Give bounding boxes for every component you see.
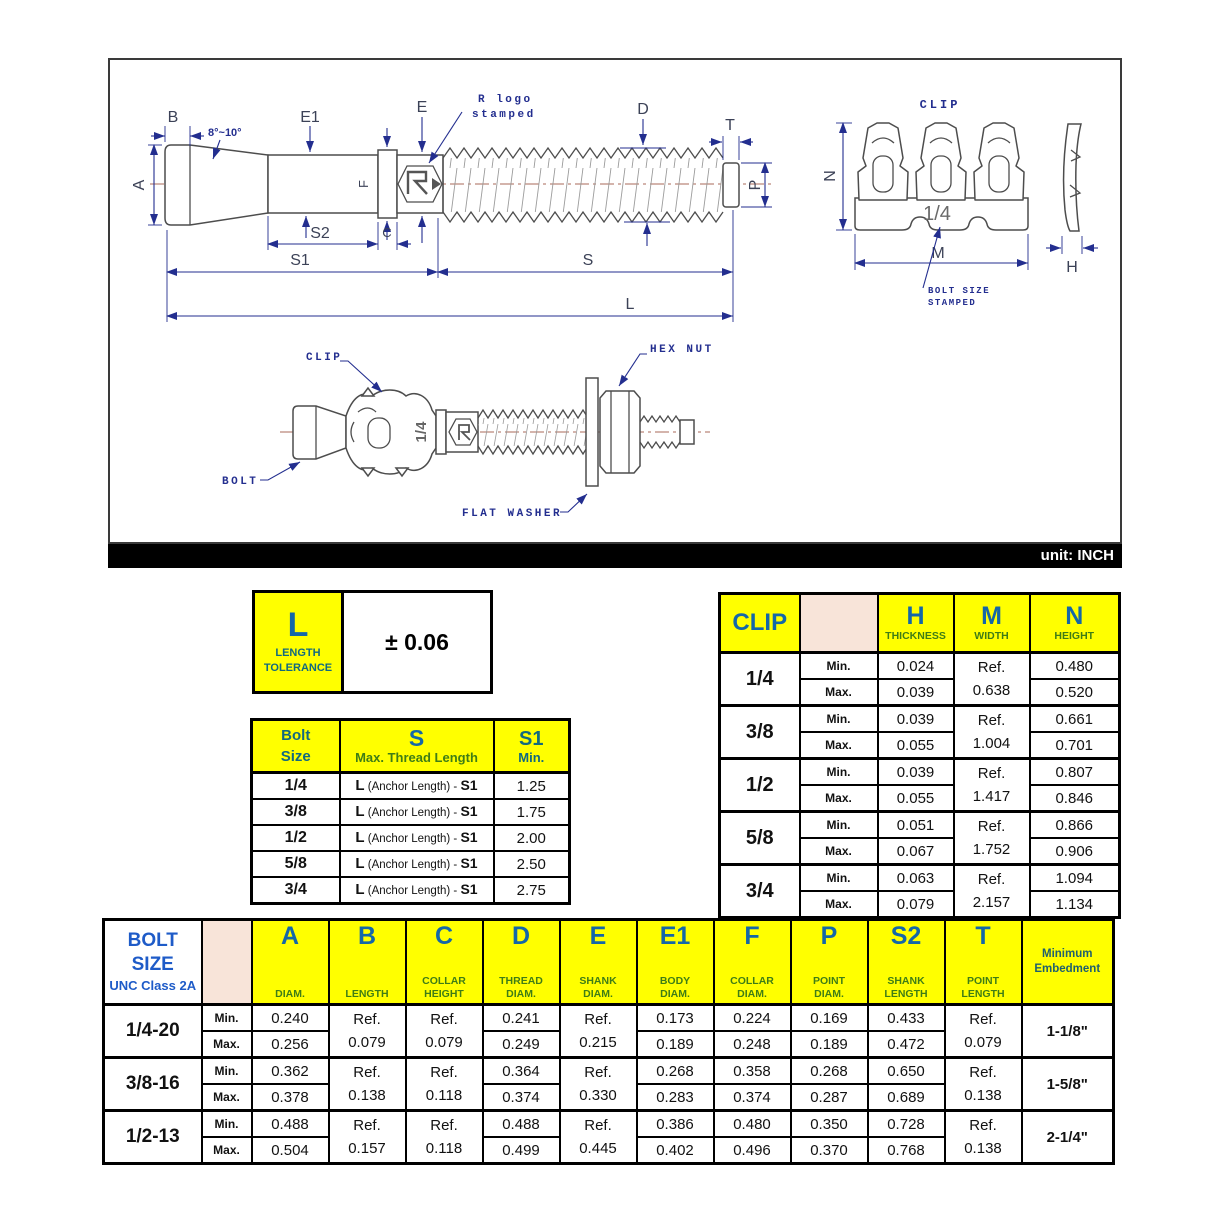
- tolerance-header-cell: L LENGTH TOLERANCE: [255, 593, 344, 691]
- cell-t-ref: Ref.0.138: [945, 1058, 1022, 1111]
- tolerance-label-1: LENGTH: [275, 646, 320, 661]
- bolt-dimension-table: BOLT SIZE UNC Class 2A ADIAM. BLENGTH CC…: [102, 918, 1115, 1165]
- table-row: 1/2-13 Min. 0.488 Ref.0.157 Ref.0.118 0.…: [104, 1111, 1114, 1138]
- cell-min-label: Min.: [800, 653, 878, 680]
- cell-e1-min: 0.386: [637, 1111, 714, 1138]
- cell-size: 1/4: [252, 773, 340, 800]
- clip-stamp-quarter: 1/4: [923, 203, 951, 225]
- cell-size: 1/2: [720, 759, 800, 812]
- clip-table-title: CLIP: [720, 594, 800, 653]
- header-t: TPOINTLENGTH: [945, 920, 1022, 1005]
- cell-size: 5/8: [720, 812, 800, 865]
- table-row: 3/8 L (Anchor Length) - S1 1.75: [252, 799, 570, 825]
- dim-label-d: D: [637, 101, 649, 118]
- table-row: 3/8 Min. 0.039 Ref.1.004 0.661: [720, 706, 1120, 733]
- cell-min-label: Min.: [800, 706, 878, 733]
- cell-n-max: 0.906: [1030, 838, 1120, 865]
- thread-length-table: Bolt Size S Max. Thread Length S1 Min. 1…: [250, 718, 571, 905]
- cell-m-ref: Ref.2.157: [954, 865, 1030, 918]
- header-spacer-cell: [800, 594, 878, 653]
- cell-s1-min: 2.75: [494, 877, 570, 904]
- cell-n-min: 0.807: [1030, 759, 1120, 786]
- cell-a-max: 0.504: [252, 1137, 329, 1164]
- cell-d-min: 0.364: [483, 1058, 560, 1085]
- header-p: PPOINTDIAM.: [791, 920, 868, 1005]
- cell-f-max: 0.496: [714, 1137, 791, 1164]
- cell-size: 1/2: [252, 825, 340, 851]
- unit-label: unit: INCH: [1041, 547, 1114, 564]
- cell-s2-min: 0.433: [868, 1005, 945, 1032]
- header-b: BLENGTH: [329, 920, 406, 1005]
- dim-label-b: B: [168, 109, 179, 126]
- cell-s1-min: 2.50: [494, 851, 570, 877]
- cell-a-max: 0.378: [252, 1084, 329, 1111]
- cell-h-max: 0.055: [878, 785, 954, 812]
- assembly-label-clip: CLIP: [306, 352, 342, 364]
- cell-h-max: 0.067: [878, 838, 954, 865]
- cell-t-ref: Ref.0.138: [945, 1111, 1022, 1164]
- cell-max-label: Max.: [800, 838, 878, 865]
- header-n: NHEIGHT: [1030, 594, 1120, 653]
- cell-c-ref: Ref.0.079: [406, 1005, 483, 1058]
- cell-n-min: 1.094: [1030, 865, 1120, 892]
- cell-a-min: 0.240: [252, 1005, 329, 1032]
- cell-size: 3/4: [720, 865, 800, 918]
- dim-label-e1: E1: [300, 109, 320, 126]
- table-row: 1/2 L (Anchor Length) - S1 2.00: [252, 825, 570, 851]
- cell-min-label: Min.: [800, 865, 878, 892]
- cell-n-max: 1.134: [1030, 891, 1120, 918]
- cell-s2-max: 0.689: [868, 1084, 945, 1111]
- table-row: 1/4 Min. 0.024 Ref.0.638 0.480: [720, 653, 1120, 680]
- cell-n-min: 0.480: [1030, 653, 1120, 680]
- cell-size: 1/4: [720, 653, 800, 706]
- assembly-label-hex-nut: HEX NUT: [650, 344, 714, 356]
- cell-size: 3/4: [252, 877, 340, 904]
- note-bolt-size-line2: STAMPED: [928, 298, 976, 308]
- cell-d-max: 0.249: [483, 1031, 560, 1058]
- cell-h-max: 0.039: [878, 679, 954, 706]
- header-m: MWIDTH: [954, 594, 1030, 653]
- cell-size: 3/8: [720, 706, 800, 759]
- header-f: FCOLLARDIAM.: [714, 920, 791, 1005]
- cell-p-max: 0.370: [791, 1137, 868, 1164]
- cell-e1-min: 0.268: [637, 1058, 714, 1085]
- dim-label-s1: S1: [290, 252, 310, 269]
- technical-drawing-panel: B 8°~10° A E1 E F: [108, 58, 1122, 544]
- cell-s1-min: 1.75: [494, 799, 570, 825]
- assembly-stamp-quarter: 1/4: [413, 421, 430, 443]
- cell-s2-max: 0.472: [868, 1031, 945, 1058]
- cell-b-ref: Ref.0.079: [329, 1005, 406, 1058]
- cell-f-max: 0.248: [714, 1031, 791, 1058]
- cell-a-min: 0.362: [252, 1058, 329, 1085]
- cell-s2-min: 0.650: [868, 1058, 945, 1085]
- tolerance-label-2: TOLERANCE: [264, 661, 332, 676]
- assembly-label-flat-washer: FLAT WASHER: [462, 508, 562, 520]
- cell-formula: L (Anchor Length) - S1: [340, 799, 494, 825]
- cell-n-max: 0.701: [1030, 732, 1120, 759]
- cell-e1-max: 0.189: [637, 1031, 714, 1058]
- cell-size: 1/4-20: [104, 1005, 202, 1058]
- table-row: 3/4 Min. 0.063 Ref.2.157 1.094: [720, 865, 1120, 892]
- note-r-logo-line1: R logo: [478, 94, 533, 106]
- dim-label-angle: 8°~10°: [208, 127, 242, 139]
- cell-e-ref: Ref.0.215: [560, 1005, 637, 1058]
- cell-d-min: 0.241: [483, 1005, 560, 1032]
- cell-formula: L (Anchor Length) - S1: [340, 851, 494, 877]
- cell-b-ref: Ref.0.138: [329, 1058, 406, 1111]
- cell-min-label: Min.: [202, 1111, 252, 1138]
- cell-embedment: 1-5/8": [1022, 1058, 1114, 1111]
- cell-a-max: 0.256: [252, 1031, 329, 1058]
- cell-s2-max: 0.768: [868, 1137, 945, 1164]
- cell-h-min: 0.039: [878, 759, 954, 786]
- header-s2: S2SHANKLENGTH: [868, 920, 945, 1005]
- clip-view-title: CLIP: [920, 98, 961, 112]
- clip-side-view: H: [1046, 124, 1098, 276]
- cell-n-max: 0.846: [1030, 785, 1120, 812]
- dim-label-f: F: [356, 180, 371, 188]
- header-d: DTHREADDIAM.: [483, 920, 560, 1005]
- dim-label-n: N: [822, 170, 839, 182]
- table-row: 1/4-20 Min. 0.240 Ref.0.079 Ref.0.079 0.…: [104, 1005, 1114, 1032]
- cell-h-min: 0.039: [878, 706, 954, 733]
- cell-min-label: Min.: [800, 759, 878, 786]
- cell-f-min: 0.224: [714, 1005, 791, 1032]
- table-row: 5/8 Min. 0.051 Ref.1.752 0.866: [720, 812, 1120, 839]
- cell-size: 3/8-16: [104, 1058, 202, 1111]
- clip-front-view: CLIP 1/4 N: [822, 98, 1028, 308]
- table-header-row: Bolt Size S Max. Thread Length S1 Min.: [252, 720, 570, 773]
- header-spacer-cell: [202, 920, 252, 1005]
- cell-min-label: Min.: [202, 1058, 252, 1085]
- dim-label-a: A: [131, 179, 148, 190]
- cell-t-ref: Ref.0.079: [945, 1005, 1022, 1058]
- cell-embedment: 1-1/8": [1022, 1005, 1114, 1058]
- dim-label-m: M: [931, 245, 944, 262]
- dim-label-s2: S2: [310, 225, 330, 242]
- dim-label-c: C: [382, 225, 391, 240]
- header-s1: S1 Min.: [494, 720, 570, 773]
- cell-b-ref: Ref.0.157: [329, 1111, 406, 1164]
- cell-e1-max: 0.402: [637, 1137, 714, 1164]
- table-header-row: CLIP HTHICKNESS MWIDTH NHEIGHT: [720, 594, 1120, 653]
- cell-m-ref: Ref.0.638: [954, 653, 1030, 706]
- cell-e1-max: 0.283: [637, 1084, 714, 1111]
- cell-p-max: 0.287: [791, 1084, 868, 1111]
- cell-min-label: Min.: [800, 812, 878, 839]
- cell-e-ref: Ref.0.445: [560, 1111, 637, 1164]
- cell-d-max: 0.374: [483, 1084, 560, 1111]
- header-a: ADIAM.: [252, 920, 329, 1005]
- cell-h-max: 0.055: [878, 732, 954, 759]
- table-row: 5/8 L (Anchor Length) - S1 2.50: [252, 851, 570, 877]
- cell-m-ref: Ref.1.417: [954, 759, 1030, 812]
- note-bolt-size-line1: BOLT SIZE: [928, 286, 990, 296]
- header-s: S Max. Thread Length: [340, 720, 494, 773]
- dim-label-s: S: [583, 252, 594, 269]
- table-row: 3/4 L (Anchor Length) - S1 2.75: [252, 877, 570, 904]
- tolerance-value: ± 0.06: [344, 593, 490, 691]
- assembly-view: 1/4 CLIP BOLT HEX NUT: [222, 344, 714, 520]
- cell-h-min: 0.024: [878, 653, 954, 680]
- cell-m-ref: Ref.1.004: [954, 706, 1030, 759]
- cell-n-min: 0.866: [1030, 812, 1120, 839]
- table-row: 1/2 Min. 0.039 Ref.1.417 0.807: [720, 759, 1120, 786]
- cell-d-min: 0.488: [483, 1111, 560, 1138]
- cell-s1-min: 2.00: [494, 825, 570, 851]
- cell-min-label: Min.: [202, 1005, 252, 1032]
- cell-h-min: 0.063: [878, 865, 954, 892]
- bolt-table-title: BOLT SIZE UNC Class 2A: [104, 920, 202, 1005]
- header-bolt-size: Bolt Size: [252, 720, 340, 773]
- cell-size: 5/8: [252, 851, 340, 877]
- cell-p-min: 0.350: [791, 1111, 868, 1138]
- cell-max-label: Max.: [800, 785, 878, 812]
- table-row: 3/8-16 Min. 0.362 Ref.0.138 Ref.0.118 0.…: [104, 1058, 1114, 1085]
- table-row: 1/4 L (Anchor Length) - S1 1.25: [252, 773, 570, 800]
- anchor-side-view: [150, 145, 775, 225]
- header-c: CCOLLARHEIGHT: [406, 920, 483, 1005]
- cell-h-max: 0.079: [878, 891, 954, 918]
- cell-max-label: Max.: [800, 891, 878, 918]
- header-embedment: MinimumEmbedment: [1022, 920, 1114, 1005]
- cell-d-max: 0.499: [483, 1137, 560, 1164]
- cell-max-label: Max.: [202, 1137, 252, 1164]
- cell-c-ref: Ref.0.118: [406, 1111, 483, 1164]
- table-header-row: BOLT SIZE UNC Class 2A ADIAM. BLENGTH CC…: [104, 920, 1114, 1005]
- dim-label-p: P: [747, 180, 764, 191]
- cell-size: 1/2-13: [104, 1111, 202, 1164]
- assembly-label-bolt: BOLT: [222, 476, 258, 488]
- unit-bar: unit: INCH: [108, 544, 1122, 568]
- cell-size: 3/8: [252, 799, 340, 825]
- cell-n-min: 0.661: [1030, 706, 1120, 733]
- cell-f-min: 0.480: [714, 1111, 791, 1138]
- cell-formula: L (Anchor Length) - S1: [340, 825, 494, 851]
- tolerance-symbol: L: [288, 608, 309, 642]
- header-h: HTHICKNESS: [878, 594, 954, 653]
- cell-max-label: Max.: [800, 732, 878, 759]
- cell-a-min: 0.488: [252, 1111, 329, 1138]
- technical-drawing: B 8°~10° A E1 E F: [110, 60, 1120, 540]
- dim-label-l: L: [626, 296, 635, 313]
- cell-p-max: 0.189: [791, 1031, 868, 1058]
- cell-embedment: 2-1/4": [1022, 1111, 1114, 1164]
- dim-label-t: T: [725, 117, 735, 134]
- cell-formula: L (Anchor Length) - S1: [340, 877, 494, 904]
- cell-max-label: Max.: [202, 1084, 252, 1111]
- header-e1: E1BODYDIAM.: [637, 920, 714, 1005]
- clip-dimension-table: CLIP HTHICKNESS MWIDTH NHEIGHT 1/4 Min. …: [718, 592, 1121, 919]
- cell-e1-min: 0.173: [637, 1005, 714, 1032]
- cell-p-min: 0.268: [791, 1058, 868, 1085]
- note-r-logo-line2: stamped: [472, 109, 536, 121]
- cell-s2-min: 0.728: [868, 1111, 945, 1138]
- cell-f-min: 0.358: [714, 1058, 791, 1085]
- cell-f-max: 0.374: [714, 1084, 791, 1111]
- cell-formula: L (Anchor Length) - S1: [340, 773, 494, 800]
- cell-max-label: Max.: [202, 1031, 252, 1058]
- cell-m-ref: Ref.1.752: [954, 812, 1030, 865]
- cell-n-max: 0.520: [1030, 679, 1120, 706]
- cell-e-ref: Ref.0.330: [560, 1058, 637, 1111]
- cell-h-min: 0.051: [878, 812, 954, 839]
- cell-s1-min: 1.25: [494, 773, 570, 800]
- cell-p-min: 0.169: [791, 1005, 868, 1032]
- dim-label-e: E: [417, 99, 428, 116]
- cell-max-label: Max.: [800, 679, 878, 706]
- tolerance-table: L LENGTH TOLERANCE ± 0.06: [252, 590, 493, 694]
- cell-c-ref: Ref.0.118: [406, 1058, 483, 1111]
- anchor-spec-sheet: B 8°~10° A E1 E F: [0, 0, 1214, 1214]
- header-e: ESHANKDIAM.: [560, 920, 637, 1005]
- dim-label-h: H: [1066, 259, 1078, 276]
